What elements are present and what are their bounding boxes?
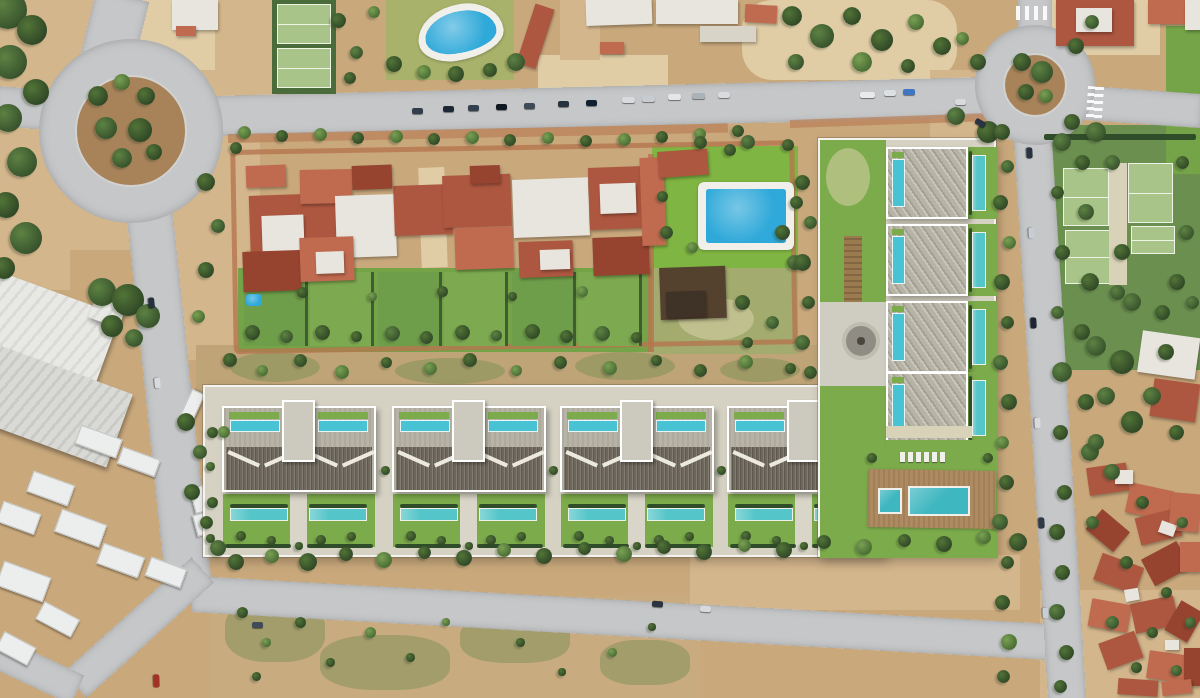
building-roof bbox=[1124, 588, 1140, 602]
tree bbox=[1097, 387, 1115, 405]
tree bbox=[385, 326, 400, 341]
tree bbox=[933, 37, 951, 55]
tree bbox=[211, 219, 225, 233]
tree bbox=[198, 262, 214, 278]
hedge-row bbox=[647, 504, 705, 508]
tree bbox=[280, 330, 293, 343]
tree bbox=[368, 292, 377, 301]
rooftop-pool bbox=[892, 236, 905, 284]
car bbox=[154, 377, 161, 389]
hedge-row bbox=[568, 504, 626, 508]
lap-pool bbox=[309, 508, 367, 521]
tree bbox=[1186, 296, 1199, 309]
tree bbox=[560, 330, 573, 343]
tree bbox=[525, 324, 540, 339]
tree bbox=[994, 124, 1010, 140]
tree bbox=[437, 536, 446, 545]
roof-lawn bbox=[892, 377, 904, 383]
tree bbox=[265, 549, 279, 563]
tree bbox=[785, 363, 796, 374]
tree bbox=[1110, 285, 1125, 300]
tree bbox=[1074, 324, 1090, 340]
tree bbox=[795, 335, 810, 350]
tree bbox=[125, 329, 143, 347]
bare-patch bbox=[826, 148, 870, 206]
tree bbox=[335, 365, 349, 379]
tree bbox=[504, 134, 516, 146]
tree bbox=[223, 353, 237, 367]
tree bbox=[766, 316, 779, 329]
kidney-pool bbox=[422, 6, 499, 58]
sun-lounger bbox=[900, 452, 905, 462]
tree bbox=[207, 427, 218, 438]
tree bbox=[257, 365, 268, 376]
building-roof bbox=[657, 149, 709, 178]
tree bbox=[802, 296, 815, 309]
small-pool bbox=[246, 294, 262, 306]
tree bbox=[788, 54, 804, 70]
tree bbox=[314, 128, 327, 141]
tree bbox=[542, 132, 554, 144]
tree bbox=[483, 63, 497, 77]
tree bbox=[7, 147, 37, 177]
car bbox=[652, 601, 663, 608]
building-roof bbox=[1185, 0, 1200, 30]
tree bbox=[1059, 645, 1074, 660]
tree bbox=[995, 595, 1010, 610]
sun-lounger bbox=[916, 452, 921, 462]
tree bbox=[1075, 155, 1090, 170]
tree bbox=[605, 536, 614, 545]
tree bbox=[350, 46, 363, 59]
tree bbox=[742, 337, 753, 348]
shed-building bbox=[35, 601, 80, 637]
car bbox=[1030, 317, 1037, 328]
tree bbox=[299, 553, 317, 571]
tree bbox=[1078, 204, 1094, 220]
tree bbox=[782, 139, 794, 151]
tree bbox=[996, 436, 1009, 449]
tree bbox=[578, 542, 591, 555]
tree bbox=[1136, 496, 1149, 509]
building-roof bbox=[176, 26, 196, 36]
tree bbox=[1085, 15, 1099, 29]
tree bbox=[1055, 245, 1070, 260]
building-roof bbox=[540, 249, 571, 270]
car bbox=[153, 674, 159, 687]
tree bbox=[326, 658, 335, 667]
grass-patch bbox=[230, 352, 320, 382]
car bbox=[496, 104, 507, 110]
tree bbox=[724, 144, 736, 156]
tree bbox=[1114, 244, 1130, 260]
tree bbox=[595, 326, 610, 341]
tree bbox=[795, 175, 810, 190]
tree bbox=[843, 7, 861, 25]
building-roof bbox=[592, 236, 649, 276]
rooftop-pool bbox=[892, 313, 905, 361]
tree bbox=[901, 59, 915, 73]
tree bbox=[739, 355, 753, 369]
building-roof bbox=[600, 42, 624, 54]
tree bbox=[297, 287, 308, 298]
tree bbox=[1106, 616, 1119, 629]
tree bbox=[381, 466, 390, 475]
tree bbox=[994, 274, 1010, 290]
hedge-row bbox=[225, 544, 291, 548]
tree bbox=[741, 135, 755, 149]
hedge-row bbox=[400, 504, 458, 508]
tree bbox=[1171, 665, 1182, 676]
car bbox=[622, 97, 635, 103]
tree bbox=[424, 362, 437, 375]
tree bbox=[517, 532, 526, 541]
tree bbox=[657, 540, 671, 554]
access-road bbox=[64, 557, 215, 697]
spiral-feature bbox=[842, 322, 880, 360]
tennis-court bbox=[1131, 226, 1175, 254]
tree bbox=[1001, 160, 1014, 173]
car bbox=[1026, 147, 1033, 158]
tree bbox=[656, 131, 668, 143]
tree bbox=[508, 292, 517, 301]
car bbox=[1042, 607, 1049, 618]
car bbox=[642, 96, 655, 102]
tree bbox=[1081, 273, 1099, 291]
tree bbox=[347, 532, 356, 541]
tree bbox=[386, 56, 402, 72]
tree bbox=[331, 13, 346, 28]
tree bbox=[804, 366, 817, 379]
tree bbox=[852, 52, 872, 72]
lap-pool bbox=[972, 232, 986, 288]
car bbox=[558, 101, 569, 107]
building-roof bbox=[666, 291, 707, 318]
tree bbox=[977, 530, 991, 544]
tree bbox=[197, 173, 215, 191]
building-roof bbox=[454, 226, 513, 270]
tree bbox=[1161, 587, 1172, 598]
hedge-row bbox=[309, 504, 367, 508]
tree bbox=[267, 536, 276, 545]
tree bbox=[1018, 84, 1034, 100]
tree bbox=[177, 413, 195, 431]
roof-lawn bbox=[318, 412, 368, 419]
tree bbox=[1086, 516, 1099, 529]
tree bbox=[193, 445, 207, 459]
tree bbox=[657, 191, 668, 202]
tree bbox=[804, 216, 817, 229]
villa-tower bbox=[282, 400, 315, 462]
tree bbox=[114, 74, 130, 90]
tree bbox=[648, 623, 656, 631]
rooftop-pool bbox=[568, 420, 618, 432]
rooftop-pool bbox=[488, 420, 538, 432]
rooftop-pool bbox=[892, 384, 905, 432]
tree bbox=[1055, 565, 1070, 580]
tree bbox=[207, 497, 218, 508]
tree bbox=[88, 86, 108, 106]
tree bbox=[406, 653, 415, 662]
tree bbox=[856, 539, 872, 555]
tree bbox=[1155, 305, 1170, 320]
building-roof bbox=[242, 250, 301, 292]
tree bbox=[1169, 274, 1185, 290]
rooftop-pool bbox=[318, 420, 368, 432]
amenity-path bbox=[886, 426, 972, 438]
tree bbox=[782, 6, 802, 26]
rooftop-pool bbox=[230, 420, 280, 432]
car bbox=[586, 100, 597, 106]
tree bbox=[992, 514, 1008, 530]
tree bbox=[947, 107, 965, 125]
villa-tower bbox=[452, 400, 485, 462]
tree bbox=[352, 132, 364, 144]
tree bbox=[685, 532, 694, 541]
tree bbox=[603, 361, 617, 375]
tree bbox=[228, 554, 244, 570]
lap-pool bbox=[735, 508, 793, 521]
tree bbox=[776, 542, 792, 558]
tree bbox=[381, 357, 392, 368]
roof-lawn bbox=[656, 412, 706, 419]
sun-lounger bbox=[940, 452, 945, 462]
lap-pool bbox=[972, 155, 986, 211]
grass-patch bbox=[600, 640, 690, 685]
car bbox=[884, 90, 896, 96]
tree bbox=[376, 552, 392, 568]
tree bbox=[1147, 627, 1158, 638]
tree bbox=[1131, 662, 1142, 673]
tree bbox=[316, 535, 326, 545]
car bbox=[1034, 417, 1041, 428]
tree bbox=[735, 295, 750, 310]
tree bbox=[230, 142, 242, 154]
tree bbox=[1053, 425, 1068, 440]
tree bbox=[23, 79, 49, 105]
tree bbox=[10, 222, 42, 254]
tree bbox=[817, 535, 831, 549]
tree bbox=[694, 364, 707, 377]
twin-villa-block bbox=[221, 400, 379, 552]
shed-building bbox=[26, 471, 75, 507]
tree bbox=[128, 118, 152, 142]
tree bbox=[1088, 434, 1104, 450]
tree bbox=[442, 618, 450, 626]
tree bbox=[1001, 316, 1014, 329]
tree bbox=[660, 226, 673, 239]
car bbox=[412, 108, 423, 114]
tree bbox=[574, 531, 584, 541]
building-roof bbox=[470, 165, 501, 184]
hedge-row bbox=[969, 228, 972, 292]
tree bbox=[1051, 306, 1064, 319]
lap-pool bbox=[972, 309, 986, 365]
tree bbox=[206, 534, 215, 543]
building-roof bbox=[246, 165, 287, 188]
tree bbox=[200, 516, 213, 529]
tree bbox=[1001, 394, 1017, 410]
tree bbox=[1185, 617, 1196, 628]
sun-lounger bbox=[932, 452, 937, 462]
tree bbox=[1031, 61, 1053, 83]
rooftop-pool bbox=[400, 420, 450, 432]
car bbox=[524, 103, 535, 109]
tree bbox=[871, 29, 893, 51]
communal-pool bbox=[878, 488, 902, 514]
tree bbox=[1054, 680, 1067, 693]
lap-pool bbox=[479, 508, 537, 521]
crosswalk bbox=[1016, 6, 1048, 20]
tree bbox=[417, 65, 431, 79]
tree bbox=[554, 356, 567, 369]
tree bbox=[1158, 344, 1174, 360]
tree bbox=[516, 638, 525, 647]
tree bbox=[136, 304, 160, 328]
tree bbox=[192, 310, 205, 323]
tree bbox=[1086, 122, 1106, 142]
building-roof bbox=[316, 251, 345, 274]
tree bbox=[294, 354, 307, 367]
tree bbox=[237, 607, 248, 618]
shed-building bbox=[0, 561, 51, 603]
lap-pool bbox=[568, 508, 626, 521]
tree bbox=[790, 196, 803, 209]
shed-building bbox=[54, 509, 107, 548]
tree bbox=[344, 72, 356, 84]
tree bbox=[1086, 336, 1106, 356]
tree bbox=[577, 286, 588, 297]
tree bbox=[549, 466, 558, 475]
building-roof bbox=[656, 0, 738, 24]
tree bbox=[418, 546, 431, 559]
villa-development-column bbox=[818, 138, 996, 557]
building-roof bbox=[1180, 542, 1200, 572]
tree bbox=[1169, 425, 1184, 440]
villa-development-row bbox=[203, 385, 885, 557]
tree bbox=[238, 126, 251, 139]
hedge-row bbox=[479, 504, 537, 508]
tree bbox=[687, 242, 698, 253]
hedge-row bbox=[969, 305, 972, 369]
tree bbox=[1013, 53, 1031, 71]
roof-lawn bbox=[488, 412, 538, 419]
villa-tower bbox=[620, 400, 653, 462]
hedge-row bbox=[969, 151, 972, 215]
building-roof bbox=[1117, 678, 1158, 697]
tennis-court bbox=[277, 48, 331, 88]
car bbox=[700, 606, 711, 613]
villa-tower bbox=[787, 400, 820, 462]
hedge-row bbox=[230, 504, 288, 508]
tree bbox=[206, 462, 215, 471]
tree bbox=[536, 548, 552, 564]
rooftop-pool bbox=[892, 159, 905, 207]
tree bbox=[428, 133, 440, 145]
tree bbox=[146, 144, 162, 160]
tree bbox=[908, 14, 924, 30]
tree bbox=[1078, 394, 1094, 410]
car bbox=[1028, 227, 1035, 238]
tree bbox=[608, 648, 617, 657]
roof-lawn bbox=[892, 306, 904, 312]
building-roof bbox=[352, 165, 393, 190]
car bbox=[668, 94, 681, 100]
tree bbox=[262, 638, 271, 647]
tree bbox=[1104, 464, 1120, 480]
tree bbox=[437, 286, 448, 297]
car bbox=[903, 89, 915, 95]
building-roof bbox=[261, 215, 304, 252]
tree bbox=[618, 133, 631, 146]
building-roof bbox=[586, 0, 653, 26]
tennis-court bbox=[277, 4, 331, 44]
car bbox=[252, 622, 263, 628]
crosswalk bbox=[1086, 86, 1104, 119]
lap-pool bbox=[230, 508, 288, 521]
tree bbox=[276, 130, 288, 142]
car bbox=[692, 93, 705, 99]
tree bbox=[580, 135, 592, 147]
car bbox=[468, 105, 479, 111]
grass-patch bbox=[395, 358, 505, 384]
tree bbox=[486, 535, 496, 545]
tree bbox=[1064, 114, 1080, 130]
car bbox=[718, 92, 730, 98]
building-roof bbox=[599, 183, 636, 214]
garden-pool bbox=[706, 189, 786, 243]
tree bbox=[616, 546, 632, 562]
tree bbox=[717, 466, 726, 475]
lap-pool bbox=[972, 380, 986, 436]
tree bbox=[511, 365, 522, 376]
tree bbox=[507, 53, 525, 71]
rooftop-pool bbox=[735, 420, 785, 432]
roof-lawn bbox=[892, 229, 904, 235]
tree bbox=[339, 547, 353, 561]
tree bbox=[218, 426, 230, 438]
roof-lawn bbox=[399, 412, 449, 419]
car bbox=[860, 92, 875, 98]
tree bbox=[456, 550, 472, 566]
lap-pool bbox=[647, 508, 705, 521]
tree bbox=[1009, 533, 1027, 551]
tree bbox=[368, 6, 380, 18]
tree bbox=[295, 617, 306, 628]
tree bbox=[558, 668, 566, 676]
car bbox=[1038, 517, 1045, 528]
tree bbox=[137, 87, 155, 105]
tree bbox=[800, 542, 808, 550]
dirt-area bbox=[690, 555, 1020, 610]
tree bbox=[1121, 411, 1143, 433]
tree bbox=[236, 531, 246, 541]
tree bbox=[420, 331, 433, 344]
tree bbox=[631, 332, 642, 343]
tree bbox=[351, 331, 362, 342]
tree bbox=[1049, 524, 1065, 540]
tree bbox=[112, 148, 132, 168]
tree bbox=[1003, 236, 1016, 249]
tree bbox=[898, 534, 911, 547]
roof-lawn bbox=[229, 412, 279, 419]
tree bbox=[738, 539, 751, 552]
tree bbox=[732, 125, 744, 137]
tree bbox=[999, 475, 1014, 490]
tree bbox=[448, 66, 464, 82]
tree bbox=[810, 24, 834, 48]
tree bbox=[101, 315, 123, 337]
